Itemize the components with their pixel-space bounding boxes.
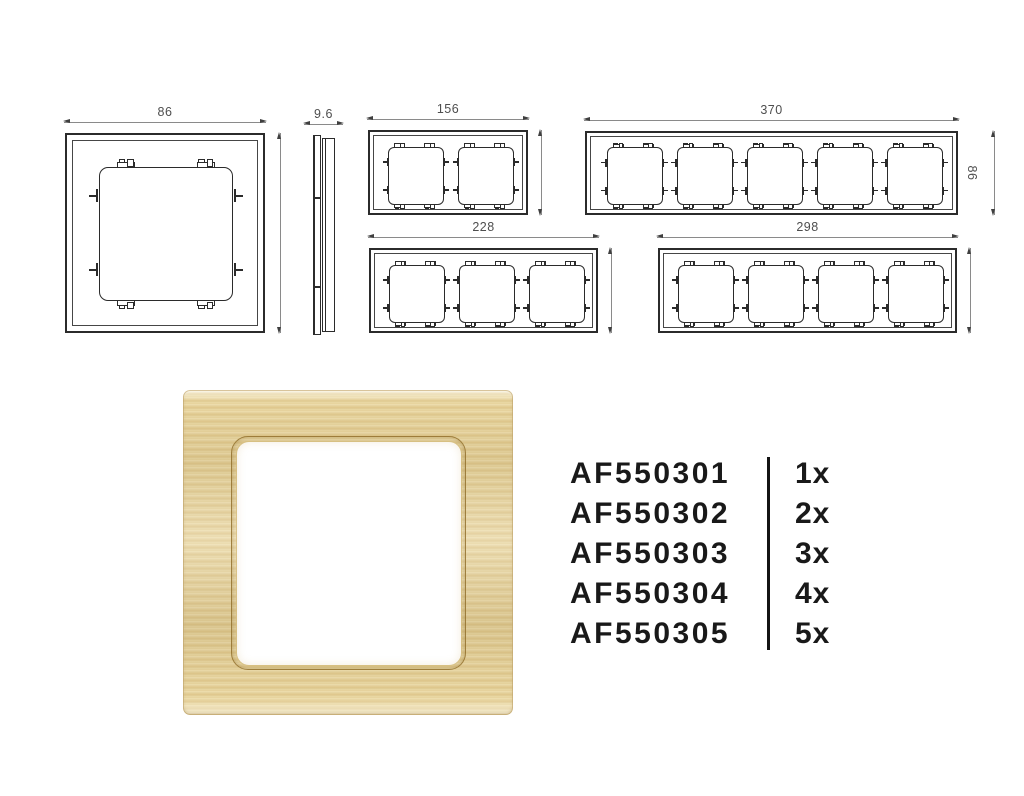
drawing-2gang-frame: 15686: [368, 130, 528, 215]
mount-clip: [495, 261, 506, 266]
dimension-height-label: 86: [965, 158, 979, 188]
side-clip: [944, 304, 950, 312]
mount-clip: [823, 204, 834, 209]
mount-clip: [714, 322, 725, 327]
mount-clip: [753, 204, 764, 209]
mount-clip: [923, 204, 934, 209]
side-clip: [671, 159, 677, 167]
side-clip: [444, 158, 450, 166]
side-clip: [601, 159, 607, 167]
side-clip: [812, 276, 818, 284]
side-clip: [804, 304, 810, 312]
dim-arrow-up: [277, 132, 281, 139]
side-clip: [742, 304, 748, 312]
side-clip: [453, 158, 459, 166]
mount-clip: [425, 322, 436, 327]
side-clip: [514, 158, 520, 166]
mount-clip: [713, 204, 724, 209]
mount-clip: [783, 204, 794, 209]
mount-clip: [465, 322, 476, 327]
side-clip: [89, 263, 98, 276]
mount-clip: [613, 143, 624, 148]
module-opening: [607, 147, 663, 205]
mount-clip: [894, 322, 905, 327]
dim-arrow-left: [367, 234, 374, 238]
mount-clip: [464, 204, 475, 209]
mount-clip: [197, 300, 215, 309]
mount-clip: [923, 143, 934, 148]
dim-arrow-down: [991, 209, 995, 216]
dimension-width-label: 9.6: [304, 108, 343, 121]
side-clip: [944, 276, 950, 284]
side-clip: [515, 304, 521, 312]
spec-sheet: 8686 9.6 15686 37086 22885 29885 AF55030…: [0, 0, 1024, 796]
mount-clip: [714, 261, 725, 266]
side-clip: [672, 304, 678, 312]
mount-clip: [395, 261, 406, 266]
mount-clip: [117, 300, 135, 309]
dim-arrow-right: [260, 119, 267, 123]
dim-arrow-up: [538, 129, 542, 136]
dimension-line: [611, 248, 612, 333]
side-clip: [881, 159, 887, 167]
dimension-line: [584, 120, 959, 121]
mount-clip: [853, 143, 864, 148]
photo-opening-rim: [231, 436, 466, 670]
dim-arrow-left: [583, 117, 590, 121]
side-clip: [514, 186, 520, 194]
side-clip: [383, 276, 389, 284]
drawing-3gang-frame: 22885: [369, 248, 598, 333]
dimension-width: 156: [367, 103, 529, 120]
dim-arrow-right: [952, 234, 959, 238]
side-clip: [663, 159, 669, 167]
module-opening: [817, 147, 873, 205]
dimension-line: [280, 133, 281, 333]
side-clip: [515, 276, 521, 284]
module-opening: [458, 147, 514, 205]
mount-clip: [494, 204, 505, 209]
dimension-line: [994, 131, 995, 215]
mount-clip: [893, 204, 904, 209]
part-code: AF550302: [570, 497, 795, 531]
side-clip: [811, 159, 817, 167]
dim-arrow-left: [303, 121, 310, 125]
side-clip: [733, 159, 739, 167]
mount-clip: [924, 322, 935, 327]
mount-clip: [684, 322, 695, 327]
mount-clip: [494, 143, 505, 148]
module-opening: [529, 265, 585, 323]
dimension-line: [657, 237, 958, 238]
mount-clip: [197, 159, 215, 168]
drawing-4gang-frame: 29885: [658, 248, 957, 333]
side-clip: [873, 187, 879, 195]
mount-clip: [783, 143, 794, 148]
frame-outline: [368, 130, 528, 215]
side-clip: [943, 187, 949, 195]
mount-clip: [823, 143, 834, 148]
mount-clip: [425, 261, 436, 266]
dim-arrow-right: [593, 234, 600, 238]
part-code: AF550305: [570, 617, 795, 651]
module-opening: [389, 265, 445, 323]
side-clip: [523, 276, 529, 284]
photo-opening: [237, 442, 461, 665]
frame-outline: [369, 248, 598, 333]
mount-clip: [424, 204, 435, 209]
frame-outline: [585, 131, 958, 215]
mount-clip: [854, 322, 865, 327]
module-opening: [747, 147, 803, 205]
side-clip: [882, 304, 888, 312]
module-opening: [888, 265, 944, 323]
part-qty: 3x: [795, 537, 830, 571]
dimension-width: 9.6: [304, 108, 343, 125]
dim-arrow-right: [337, 121, 344, 125]
dim-arrow-left: [656, 234, 663, 238]
side-clip: [812, 304, 818, 312]
side-clip: [663, 187, 669, 195]
parts-list-row: AF5503011x: [570, 454, 870, 494]
side-clip: [585, 304, 591, 312]
mount-clip: [495, 322, 506, 327]
side-clip: [742, 276, 748, 284]
parts-list-row: AF5503022x: [570, 494, 870, 534]
profile-back-plate: [322, 138, 335, 332]
drawing-1gang-front-view: 8686: [65, 133, 265, 333]
side-clip: [444, 186, 450, 194]
side-clip: [383, 186, 389, 194]
dim-arrow-up: [608, 247, 612, 254]
dimension-width-label: 86: [64, 106, 266, 119]
side-clip: [734, 304, 740, 312]
dimension-width: 228: [368, 221, 599, 238]
side-clip: [453, 186, 459, 194]
module-opening: [677, 147, 733, 205]
mount-clip: [684, 261, 695, 266]
dimension-line: [304, 124, 343, 125]
mount-clip: [683, 143, 694, 148]
mount-clip: [394, 143, 405, 148]
side-clip: [234, 263, 243, 276]
mount-clip: [824, 261, 835, 266]
dimension-line: [368, 237, 599, 238]
dimension-line: [367, 119, 529, 120]
side-clip: [453, 276, 459, 284]
side-clip: [89, 189, 98, 202]
dim-arrow-down: [608, 327, 612, 334]
mount-clip: [464, 143, 475, 148]
side-clip: [671, 187, 677, 195]
dim-arrow-up: [991, 130, 995, 137]
part-qty: 1x: [795, 457, 830, 491]
dimension-width: 298: [657, 221, 958, 238]
dimension-width-label: 298: [657, 221, 958, 234]
side-clip: [741, 159, 747, 167]
side-clip: [523, 304, 529, 312]
parts-list-row: AF5503055x: [570, 614, 870, 654]
side-clip: [811, 187, 817, 195]
side-clip: [445, 304, 451, 312]
dimension-width-label: 228: [368, 221, 599, 234]
side-clip: [943, 159, 949, 167]
mount-clip: [754, 322, 765, 327]
dim-arrow-left: [366, 116, 373, 120]
dimension-line: [64, 122, 266, 123]
module-opening: [678, 265, 734, 323]
dimension-width: 86: [64, 106, 266, 123]
dim-arrow-down: [277, 327, 281, 334]
module-opening: [459, 265, 515, 323]
mount-clip: [395, 322, 406, 327]
mount-clip: [117, 159, 135, 168]
side-clip: [733, 187, 739, 195]
module-opening: [99, 167, 233, 301]
mount-clip: [713, 143, 724, 148]
mount-clip: [754, 261, 765, 266]
side-clip: [383, 158, 389, 166]
side-clip: [453, 304, 459, 312]
mount-clip: [893, 143, 904, 148]
side-clip: [882, 276, 888, 284]
part-qty: 5x: [795, 617, 830, 651]
part-code: AF550301: [570, 457, 795, 491]
dim-arrow-left: [63, 119, 70, 123]
part-code: AF550303: [570, 537, 795, 571]
dimension-line: [541, 130, 542, 215]
side-clip: [445, 276, 451, 284]
module-opening: [748, 265, 804, 323]
side-clip: [672, 276, 678, 284]
dimension-width: 370: [584, 104, 959, 121]
drawing-side-profile: 9.6: [313, 135, 334, 333]
mount-clip: [465, 261, 476, 266]
dim-arrow-right: [953, 117, 960, 121]
mount-clip: [535, 322, 546, 327]
side-clip: [601, 187, 607, 195]
mount-clip: [753, 143, 764, 148]
dim-arrow-down: [967, 327, 971, 334]
mount-clip: [784, 261, 795, 266]
dim-arrow-down: [538, 209, 542, 216]
dimension-width-label: 370: [584, 104, 959, 117]
side-clip: [383, 304, 389, 312]
dimension-line: [970, 248, 971, 333]
side-clip: [734, 276, 740, 284]
side-clip: [804, 276, 810, 284]
dimension-width-label: 156: [367, 103, 529, 116]
frame-outline: [65, 133, 265, 333]
module-opening: [388, 147, 444, 205]
part-qty: 2x: [795, 497, 830, 531]
module-opening: [887, 147, 943, 205]
side-clip: [585, 276, 591, 284]
side-clip: [803, 187, 809, 195]
profile-front-plate: [313, 135, 321, 335]
mount-clip: [565, 261, 576, 266]
mount-clip: [424, 143, 435, 148]
side-clip: [234, 189, 243, 202]
product-photo-gold-frame: [183, 390, 513, 715]
frame-outline: [658, 248, 957, 333]
side-clip: [881, 187, 887, 195]
mount-clip: [643, 143, 654, 148]
mount-clip: [565, 322, 576, 327]
side-clip: [874, 276, 880, 284]
module-opening: [818, 265, 874, 323]
mount-clip: [853, 204, 864, 209]
mount-clip: [924, 261, 935, 266]
parts-list-row: AF5503033x: [570, 534, 870, 574]
side-clip: [874, 304, 880, 312]
side-clip: [741, 187, 747, 195]
dim-arrow-right: [523, 116, 530, 120]
mount-clip: [535, 261, 546, 266]
drawing-5gang-frame: 37086: [585, 131, 958, 215]
dim-arrow-up: [967, 247, 971, 254]
mount-clip: [894, 261, 905, 266]
mount-clip: [784, 322, 795, 327]
mount-clip: [824, 322, 835, 327]
mount-clip: [643, 204, 654, 209]
side-clip: [803, 159, 809, 167]
mount-clip: [854, 261, 865, 266]
part-qty: 4x: [795, 577, 830, 611]
mount-clip: [683, 204, 694, 209]
side-clip: [873, 159, 879, 167]
parts-list-row: AF5503044x: [570, 574, 870, 614]
parts-list: AF5503011xAF5503022xAF5503033xAF5503044x…: [570, 454, 870, 654]
mount-clip: [394, 204, 405, 209]
mount-clip: [613, 204, 624, 209]
part-code: AF550304: [570, 577, 795, 611]
